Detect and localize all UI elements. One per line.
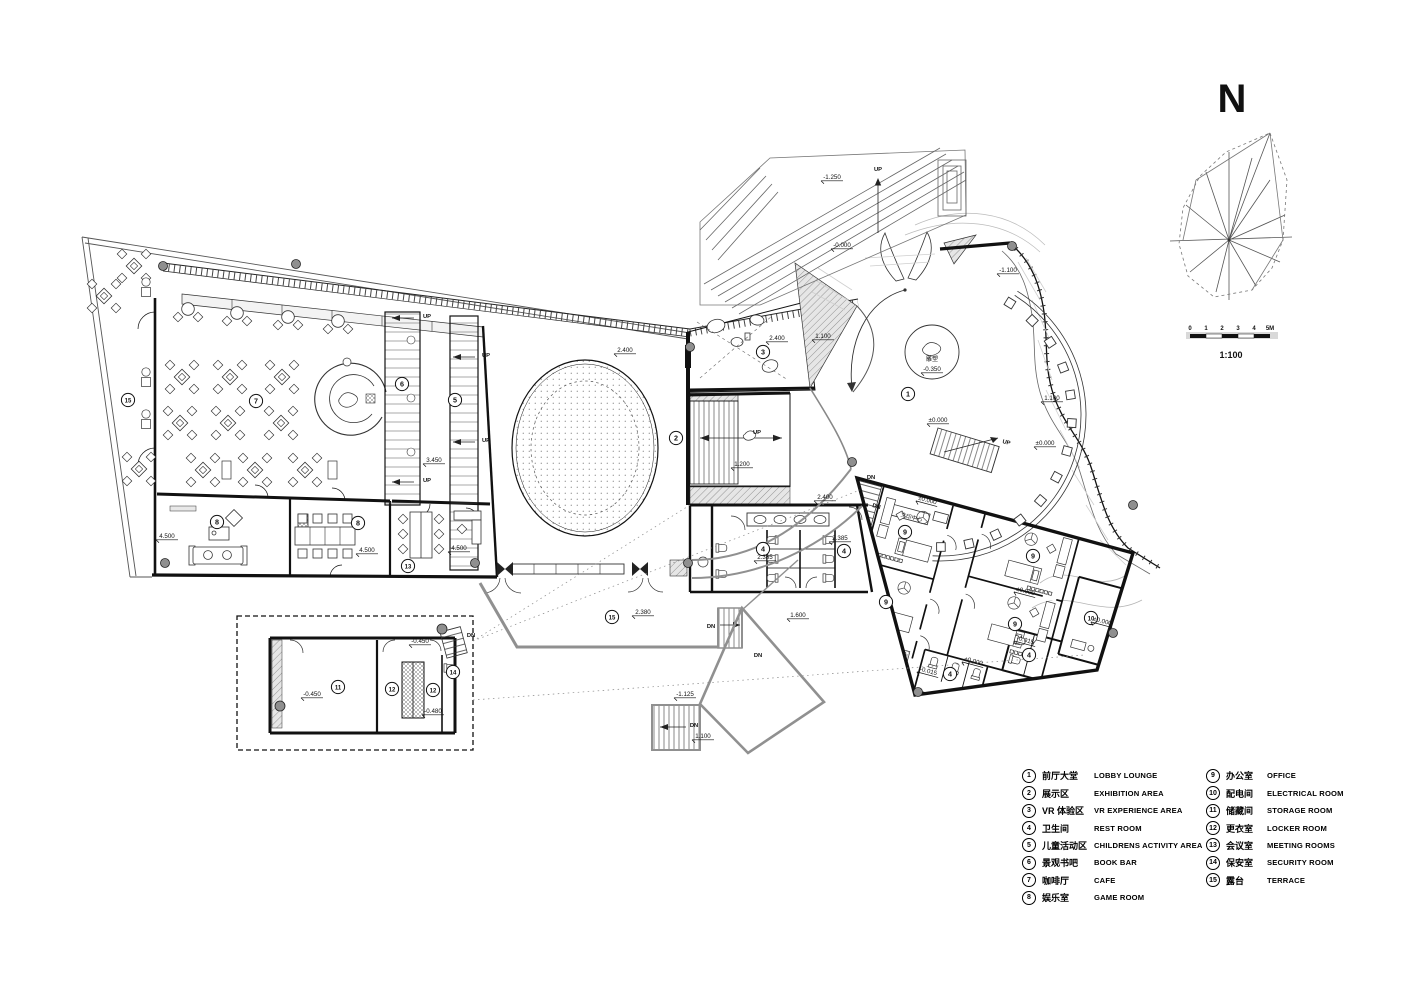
legend-label-en: MEETING ROOMS <box>1267 841 1335 850</box>
legend-number: 9 <box>1206 769 1220 783</box>
legend-item: 15露台TERRACE <box>1206 872 1344 889</box>
svg-text:-0.450: -0.450 <box>411 638 429 645</box>
svg-text:DN: DN <box>690 723 698 729</box>
floor-plan-sheet: N 1:100 12344445678899991011121213141515… <box>0 0 1414 1000</box>
svg-text:5: 5 <box>453 395 457 404</box>
legend-number: 7 <box>1022 873 1036 887</box>
svg-text:3: 3 <box>1236 326 1240 332</box>
legend-column-1: 1前厅大堂LOBBY LOUNGE2展示区EXHIBITION AREA3VR … <box>1022 767 1203 907</box>
svg-text:4: 4 <box>761 544 765 553</box>
legend-number: 12 <box>1206 821 1220 835</box>
legend-label-en: ELECTRICAL ROOM <box>1267 789 1344 798</box>
svg-text:4.500: 4.500 <box>359 547 375 554</box>
svg-text:9: 9 <box>884 597 888 606</box>
scale-bar: 1:100 <box>1186 332 1278 360</box>
svg-text:14: 14 <box>450 670 457 676</box>
svg-text:±0.000: ±0.000 <box>1036 440 1055 447</box>
legend-label-zh: 办公室 <box>1226 769 1267 782</box>
legend-label-zh: 咖啡厅 <box>1042 874 1094 887</box>
legend-item: 7咖啡厅CAFE <box>1022 872 1203 889</box>
vr-experience-area <box>688 302 815 392</box>
svg-text:-0.450: -0.450 <box>303 691 321 698</box>
svg-text:3: 3 <box>761 347 765 356</box>
scale-ratio: 1:100 <box>1219 350 1242 360</box>
legend-label-zh: 展示区 <box>1042 787 1094 800</box>
svg-text:6: 6 <box>400 379 404 388</box>
svg-text:1.100: 1.100 <box>815 333 831 340</box>
legend-label-zh: 前厅大堂 <box>1042 769 1094 782</box>
legend-column-2: 9办公室OFFICE10配电间ELECTRICAL ROOM11储藏间STORA… <box>1206 767 1344 889</box>
north-rose: N <box>1170 77 1292 300</box>
svg-text:4: 4 <box>948 669 952 678</box>
svg-text:±0.000: ±0.000 <box>917 495 938 507</box>
svg-text:8: 8 <box>215 517 219 526</box>
storage-building <box>237 616 473 750</box>
legend-item: 6景观书吧BOOK BAR <box>1022 854 1203 871</box>
legend-item: 1前厅大堂LOBBY LOUNGE <box>1022 767 1203 784</box>
svg-text:UP: UP <box>423 314 431 320</box>
svg-text:2.380: 2.380 <box>635 609 651 616</box>
svg-text:4: 4 <box>842 546 846 555</box>
svg-text:2.385: 2.385 <box>832 535 848 542</box>
svg-text:9: 9 <box>903 527 907 536</box>
svg-text:±0.000: ±0.000 <box>929 417 948 424</box>
svg-text:2: 2 <box>674 433 678 442</box>
legend-label-zh: 卫生间 <box>1042 822 1094 835</box>
legend-item: 8娱乐室GAME ROOM <box>1022 889 1203 906</box>
svg-text:2.400: 2.400 <box>617 347 633 354</box>
legend-item: 5儿童活动区CHILDRENS ACTIVITY AREA <box>1022 837 1203 854</box>
book-bar-strip <box>385 312 420 505</box>
svg-text:DN: DN <box>467 633 475 639</box>
legend-item: 12更衣室LOCKER ROOM <box>1206 819 1344 836</box>
svg-text:5M: 5M <box>1266 326 1274 332</box>
legend-number: 4 <box>1022 821 1036 835</box>
svg-text:7: 7 <box>254 396 258 405</box>
svg-text:1.600: 1.600 <box>790 612 806 619</box>
legend-label-en: VR EXPERIENCE AREA <box>1094 806 1183 815</box>
legend-label-en: REST ROOM <box>1094 824 1142 833</box>
svg-text:8: 8 <box>356 518 360 527</box>
legend-number: 1 <box>1022 769 1036 783</box>
svg-text:15: 15 <box>609 615 616 621</box>
legend-label-en: TERRACE <box>1267 876 1305 885</box>
svg-text:UP: UP <box>1002 439 1011 447</box>
svg-text:UP: UP <box>874 167 882 173</box>
legend-label-en: CHILDRENS ACTIVITY AREA <box>1094 841 1203 850</box>
legend-label-zh: 会议室 <box>1226 839 1267 852</box>
legend-item: 14保安室SECURITY ROOM <box>1206 854 1344 871</box>
legend-label-zh: 儿童活动区 <box>1042 839 1094 852</box>
legend-item: 2展示区EXHIBITION AREA <box>1022 784 1203 801</box>
legend-label-zh: 配电间 <box>1226 787 1267 800</box>
svg-text:4: 4 <box>1027 650 1031 659</box>
display-wall-squares <box>937 297 1077 551</box>
legend-number: 15 <box>1206 873 1220 887</box>
legend-item: 4卫生间REST ROOM <box>1022 819 1203 836</box>
legend-number: 14 <box>1206 856 1220 870</box>
svg-text:2.385: 2.385 <box>757 554 773 561</box>
svg-text:4: 4 <box>1252 326 1256 332</box>
legend-label-en: GAME ROOM <box>1094 893 1144 902</box>
svg-text:1.100: 1.100 <box>1044 395 1060 402</box>
svg-text:3.450: 3.450 <box>426 457 442 464</box>
svg-text:1.100: 1.100 <box>695 733 711 740</box>
office-wing <box>807 428 1133 737</box>
svg-text:0: 0 <box>1188 326 1192 332</box>
svg-text:2: 2 <box>1220 326 1224 332</box>
svg-text:12: 12 <box>430 688 437 694</box>
legend-item: 9办公室OFFICE <box>1206 767 1344 784</box>
legend-number: 13 <box>1206 838 1220 852</box>
svg-text:9: 9 <box>1013 619 1017 628</box>
svg-text:1: 1 <box>906 389 910 398</box>
svg-text:1.200: 1.200 <box>734 461 750 468</box>
svg-text:UP: UP <box>482 353 490 359</box>
svg-text:4.500: 4.500 <box>159 533 175 540</box>
svg-text:DN: DN <box>754 653 762 659</box>
game-room-right <box>295 514 355 558</box>
svg-text:2.400: 2.400 <box>769 335 785 342</box>
legend-label-zh: 更衣室 <box>1226 822 1267 835</box>
legend-label-zh: 景观书吧 <box>1042 856 1094 869</box>
legend-label-en: BOOK BAR <box>1094 858 1137 867</box>
legend-label-en: CAFE <box>1094 876 1115 885</box>
legend-number: 5 <box>1022 838 1036 852</box>
legend-label-zh: 露台 <box>1226 874 1267 887</box>
legend-label-zh: 娱乐室 <box>1042 891 1094 904</box>
legend-number: 2 <box>1022 786 1036 800</box>
scale-ticks: 012345M <box>1188 326 1274 332</box>
svg-text:-1.250: -1.250 <box>823 174 841 181</box>
legend-number: 11 <box>1206 804 1220 818</box>
legend-item: 3VR 体验区VR EXPERIENCE AREA <box>1022 802 1203 819</box>
legend-item: 13会议室MEETING ROOMS <box>1206 837 1344 854</box>
north-letter: N <box>1218 77 1247 121</box>
svg-text:±0.000: ±0.000 <box>963 656 984 668</box>
svg-text:UP: UP <box>423 478 431 484</box>
legend-label-en: STORAGE ROOM <box>1267 806 1333 815</box>
legend-label-zh: 保安室 <box>1226 856 1267 869</box>
legend-item: 11储藏间STORAGE ROOM <box>1206 802 1344 819</box>
legend-label-en: LOCKER ROOM <box>1267 824 1327 833</box>
svg-text:-0.350: -0.350 <box>923 366 941 373</box>
svg-text:11: 11 <box>335 685 342 691</box>
svg-text:13: 13 <box>405 564 412 570</box>
svg-text:9: 9 <box>1031 551 1035 560</box>
legend-label-zh: 储藏间 <box>1226 804 1267 817</box>
legend-label-en: EXHIBITION AREA <box>1094 789 1164 798</box>
legend-label-en: OFFICE <box>1267 771 1296 780</box>
svg-text:4.500: 4.500 <box>451 545 467 552</box>
svg-text:DN: DN <box>867 475 875 481</box>
svg-text:DN: DN <box>707 624 715 630</box>
svg-text:UP: UP <box>482 438 490 444</box>
legend-number: 6 <box>1022 856 1036 870</box>
legend-label-en: SECURITY ROOM <box>1267 858 1334 867</box>
svg-text:UP: UP <box>753 430 761 436</box>
svg-text:-1.100: -1.100 <box>999 267 1017 274</box>
svg-text:2.400: 2.400 <box>817 494 833 501</box>
svg-text:12: 12 <box>389 687 396 693</box>
roof-edge-bands <box>163 263 858 337</box>
svg-text:雕塑: 雕塑 <box>926 355 938 363</box>
legend-label-en: LOBBY LOUNGE <box>1094 771 1157 780</box>
svg-text:1: 1 <box>1204 326 1208 332</box>
legend-number: 3 <box>1022 804 1036 818</box>
svg-text:15: 15 <box>125 398 132 404</box>
legend-label-zh: VR 体验区 <box>1042 804 1094 817</box>
svg-text:-1.125: -1.125 <box>676 691 694 698</box>
legend-number: 8 <box>1022 891 1036 905</box>
central-ellipse-court <box>512 360 658 536</box>
svg-text:-0.000: -0.000 <box>833 242 851 249</box>
south-corridor <box>484 560 687 593</box>
svg-text:±0.000: ±0.000 <box>1092 616 1113 628</box>
svg-text:-0.480: -0.480 <box>424 708 442 715</box>
game-room-left <box>170 506 247 565</box>
lower-terrace <box>480 560 824 753</box>
exhibition-area <box>688 332 790 505</box>
legend-number: 10 <box>1206 786 1220 800</box>
legend-item: 10配电间ELECTRICAL ROOM <box>1206 784 1344 801</box>
